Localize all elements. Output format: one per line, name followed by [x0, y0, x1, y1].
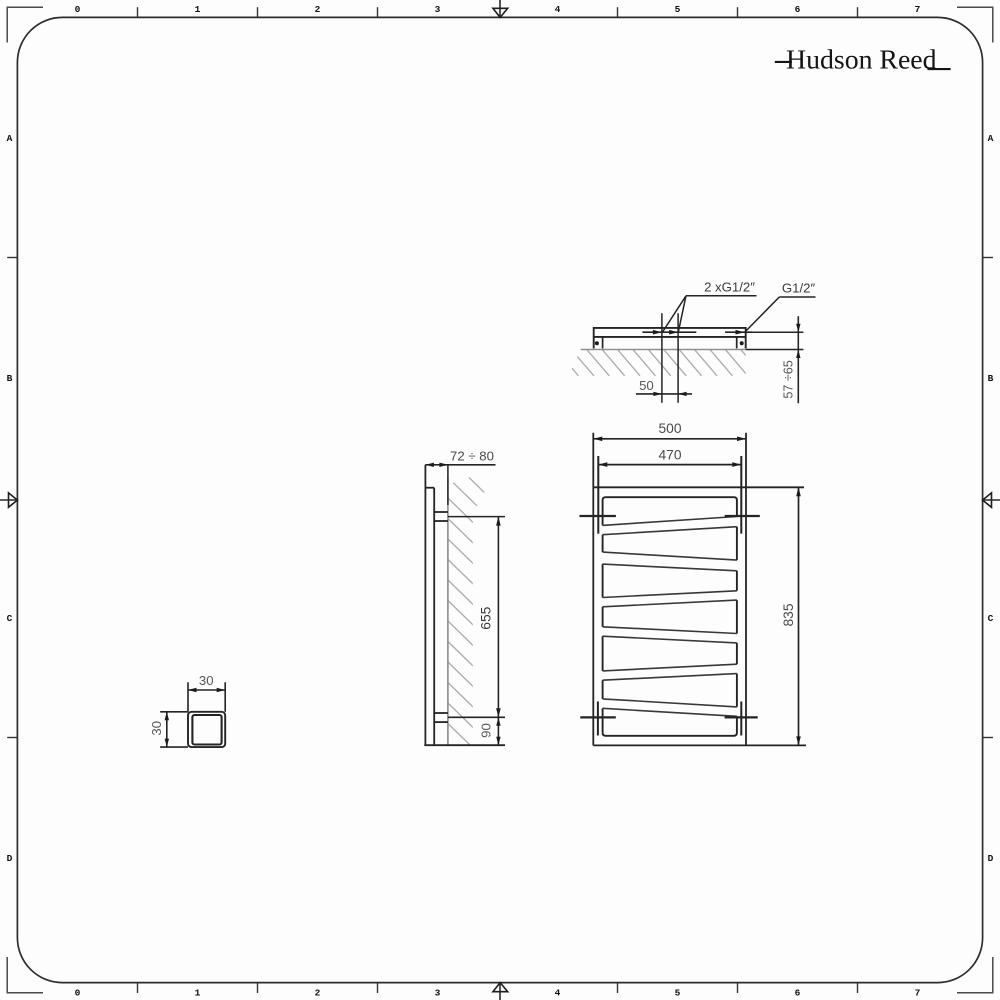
svg-text:0: 0 — [75, 988, 81, 999]
svg-text:835: 835 — [781, 603, 796, 626]
svg-text:6: 6 — [795, 988, 801, 999]
svg-text:6: 6 — [795, 4, 801, 15]
svg-text:655: 655 — [479, 606, 494, 629]
svg-text:2: 2 — [315, 988, 321, 999]
svg-text:A: A — [7, 133, 13, 144]
svg-text:Hudson Reed: Hudson Reed — [786, 45, 937, 76]
svg-text:30: 30 — [199, 673, 214, 688]
svg-text:B: B — [7, 373, 13, 384]
svg-text:500: 500 — [658, 421, 681, 436]
svg-text:4: 4 — [555, 988, 561, 999]
svg-text:G1/2″: G1/2″ — [782, 280, 816, 295]
svg-text:2 xG1/2″: 2 xG1/2″ — [704, 279, 755, 294]
svg-text:7: 7 — [915, 4, 921, 15]
svg-text:2: 2 — [315, 4, 321, 15]
svg-text:470: 470 — [658, 448, 681, 463]
svg-text:5: 5 — [675, 988, 681, 999]
svg-text:D: D — [7, 853, 13, 864]
svg-text:A: A — [988, 133, 994, 144]
svg-text:57 ÷65: 57 ÷65 — [782, 360, 796, 398]
svg-text:0: 0 — [75, 4, 81, 15]
svg-text:72 ÷ 80: 72 ÷ 80 — [450, 448, 494, 463]
svg-text:4: 4 — [555, 4, 561, 15]
svg-text:50: 50 — [639, 378, 654, 393]
svg-text:B: B — [988, 373, 994, 384]
svg-text:C: C — [988, 613, 994, 624]
svg-text:1: 1 — [195, 4, 201, 15]
svg-text:C: C — [7, 613, 13, 624]
svg-text:90: 90 — [479, 723, 494, 738]
svg-text:7: 7 — [915, 988, 921, 999]
svg-text:3: 3 — [435, 988, 441, 999]
svg-text:30: 30 — [149, 721, 164, 736]
svg-text:1: 1 — [195, 988, 201, 999]
svg-text:D: D — [988, 853, 994, 864]
svg-text:5: 5 — [675, 4, 681, 15]
svg-text:3: 3 — [435, 4, 441, 15]
